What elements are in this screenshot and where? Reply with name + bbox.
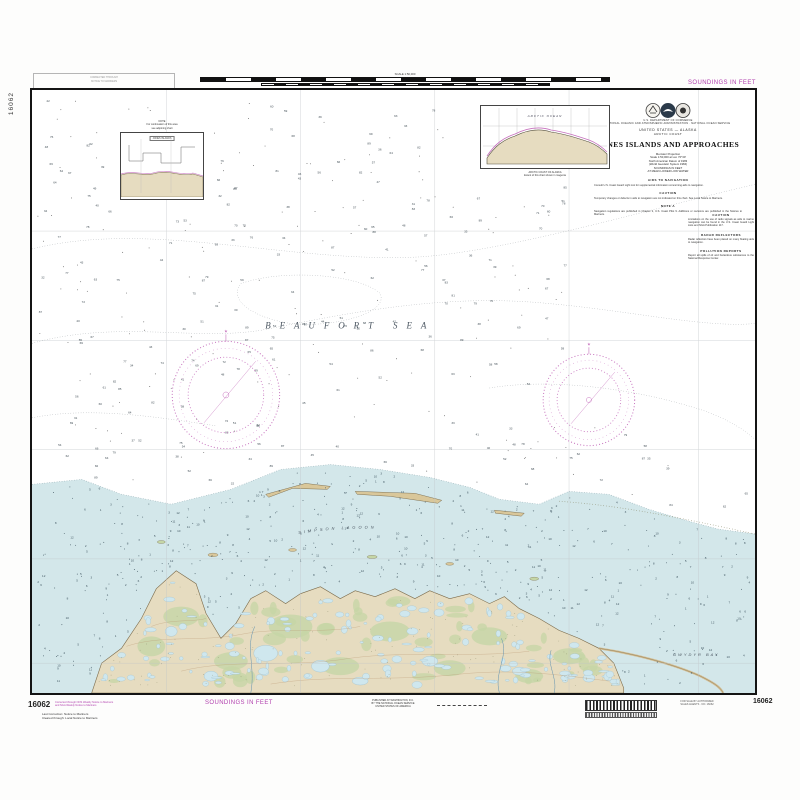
svg-text:11: 11	[172, 520, 175, 524]
svg-text:53: 53	[184, 219, 188, 223]
svg-text:34: 34	[44, 209, 48, 213]
svg-text:12: 12	[264, 558, 268, 562]
svg-text:82: 82	[227, 203, 231, 207]
svg-text:54: 54	[329, 362, 333, 366]
svg-text:62: 62	[577, 452, 581, 456]
svg-text:41: 41	[181, 377, 185, 381]
svg-text:89: 89	[270, 464, 274, 468]
svg-text:37: 37	[131, 438, 135, 442]
svg-text:33: 33	[231, 238, 235, 242]
svg-text:57: 57	[424, 233, 428, 237]
svg-text:58: 58	[181, 404, 185, 408]
right-notes-column: CAUTION Limitations on the use of radio …	[687, 208, 755, 261]
svg-text:30: 30	[182, 327, 186, 331]
svg-text:78: 78	[237, 367, 241, 371]
svg-text:77: 77	[58, 235, 62, 239]
svg-text:70: 70	[539, 226, 543, 230]
svg-text:35: 35	[464, 229, 468, 233]
svg-text:34: 34	[130, 363, 134, 367]
svg-text:12: 12	[42, 574, 46, 578]
svg-text:78: 78	[86, 225, 90, 229]
svg-text:70: 70	[234, 224, 238, 228]
svg-text:56: 56	[318, 170, 322, 174]
svg-text:82: 82	[95, 464, 99, 468]
svg-text:75: 75	[192, 292, 196, 296]
svg-text:12: 12	[596, 623, 600, 627]
svg-text:63: 63	[94, 278, 98, 282]
svg-text:48: 48	[221, 373, 225, 377]
svg-text:66: 66	[209, 478, 213, 482]
svg-text:79: 79	[474, 301, 478, 305]
svg-text:38: 38	[477, 322, 481, 326]
svg-text:72: 72	[82, 300, 86, 304]
svg-text:59: 59	[240, 278, 244, 282]
svg-text:39: 39	[493, 265, 497, 269]
svg-text:67: 67	[545, 287, 549, 291]
note-heading: RADAR REFLECTORS	[687, 233, 755, 237]
svg-text:37: 37	[442, 278, 446, 282]
svg-text:10: 10	[437, 574, 441, 578]
svg-text:36: 36	[378, 148, 382, 152]
svg-text:11: 11	[571, 606, 574, 610]
svg-text:66: 66	[384, 460, 388, 464]
svg-text:77: 77	[563, 263, 567, 267]
inset-caption-line: see adjoining chart	[120, 127, 204, 130]
depth-conversion-scale	[585, 700, 657, 718]
svg-text:33: 33	[404, 124, 408, 128]
svg-text:64: 64	[105, 456, 109, 460]
svg-text:52: 52	[331, 268, 335, 272]
note-body: Radar reflectors have been placed on man…	[688, 238, 754, 244]
svg-text:40: 40	[336, 445, 340, 449]
margin-dash-rule	[437, 705, 487, 706]
svg-text:10: 10	[396, 532, 400, 536]
svg-text:35: 35	[647, 456, 651, 460]
svg-text:11: 11	[532, 565, 535, 569]
svg-text:74: 74	[191, 358, 195, 362]
svg-text:57: 57	[372, 160, 376, 164]
svg-text:38: 38	[286, 205, 290, 209]
svg-text:31: 31	[412, 202, 416, 206]
svg-text:44: 44	[160, 258, 164, 262]
conversion-scale-row	[585, 712, 657, 718]
svg-text:66: 66	[95, 446, 99, 450]
correction-note-magenta: Corrected through NOS Weekly Notice to M…	[55, 701, 155, 707]
svg-text:52: 52	[138, 439, 142, 443]
svg-text:10: 10	[66, 616, 70, 620]
chart-number-left-margin: 16062	[8, 92, 16, 115]
note-body: Consult U.S. Coast Guard Light List for …	[594, 184, 742, 187]
note-heading: CAUTION	[580, 192, 756, 196]
svg-text:65: 65	[371, 225, 375, 229]
svg-text:32: 32	[231, 481, 235, 485]
svg-text:36: 36	[469, 254, 473, 258]
svg-text:12: 12	[341, 506, 345, 510]
chart-number-bottom-right: 16062	[753, 698, 772, 707]
note-heading: CAUTION	[687, 213, 755, 217]
svg-text:78: 78	[432, 109, 436, 113]
svg-text:31: 31	[74, 416, 78, 420]
svg-text:70: 70	[490, 299, 494, 303]
svg-text:60: 60	[547, 209, 551, 213]
svg-text:11: 11	[505, 543, 508, 547]
scale-label: SCALE 1:50,000	[200, 72, 610, 76]
svg-text:45: 45	[302, 401, 306, 405]
svg-text:64: 64	[390, 151, 394, 155]
svg-text:32: 32	[41, 275, 45, 279]
svg-text:10: 10	[727, 655, 731, 659]
svg-text:68: 68	[546, 277, 550, 281]
svg-text:10: 10	[562, 606, 566, 610]
svg-text:84: 84	[669, 503, 673, 507]
svg-text:76: 76	[250, 236, 254, 240]
svg-text:47: 47	[545, 317, 549, 321]
svg-text:10: 10	[619, 581, 623, 585]
svg-text:49: 49	[93, 186, 97, 190]
svg-text:56: 56	[257, 442, 261, 446]
svg-text:40: 40	[76, 319, 80, 323]
svg-text:11: 11	[543, 567, 546, 571]
svg-text:32: 32	[218, 194, 222, 198]
svg-text:52: 52	[503, 457, 507, 461]
svg-text:10: 10	[404, 535, 408, 539]
svg-text:52: 52	[188, 469, 192, 473]
soundings-note-bottom: SOUNDINGS IN FEET	[205, 700, 273, 708]
sales-agent-note: FOR SALE BY AUTHORIZED SALES AGENTS · NO…	[665, 700, 729, 706]
svg-text:10: 10	[256, 493, 260, 497]
svg-text:12: 12	[549, 588, 553, 592]
correction-stamp-box: CORRECTED THROUGH NOTICE TO MARINERS	[33, 73, 175, 89]
note-body: Report all spills of oil and hazardous s…	[688, 254, 754, 260]
svg-text:89: 89	[245, 325, 249, 329]
svg-text:12: 12	[360, 512, 364, 516]
chart-number-bottom-left: 16062	[28, 700, 50, 710]
agency-seals	[645, 102, 691, 119]
svg-text:64: 64	[60, 169, 64, 173]
svg-text:11: 11	[187, 525, 190, 529]
svg-text:41: 41	[476, 433, 480, 437]
svg-text:41: 41	[385, 248, 389, 252]
svg-text:71: 71	[488, 258, 492, 262]
svg-text:12: 12	[303, 546, 307, 550]
svg-text:82: 82	[113, 380, 117, 384]
svg-text:69: 69	[80, 341, 84, 345]
svg-text:75: 75	[243, 223, 247, 227]
svg-text:45: 45	[311, 453, 315, 457]
svg-text:70: 70	[541, 204, 545, 208]
svg-text:11: 11	[461, 508, 464, 512]
svg-text:56: 56	[75, 394, 79, 398]
svg-text:10: 10	[455, 558, 459, 562]
svg-text:81: 81	[275, 169, 279, 173]
svg-text:81: 81	[452, 294, 456, 298]
svg-text:70: 70	[270, 127, 274, 131]
svg-text:39: 39	[101, 165, 105, 169]
svg-text:60: 60	[270, 105, 274, 109]
svg-text:30: 30	[234, 308, 238, 312]
scale-bar-secondary	[261, 83, 550, 87]
note-heading: POLLUTION REPORTS	[687, 249, 755, 253]
svg-text:67: 67	[68, 171, 72, 175]
stamp-line: NOTICE TO MARINERS	[34, 80, 174, 84]
svg-text:65: 65	[248, 350, 252, 354]
svg-text:69: 69	[369, 132, 373, 136]
svg-text:68: 68	[421, 348, 425, 352]
svg-text:75: 75	[569, 456, 573, 460]
magenta-note-line: and NGA Weekly Notice to Mariners	[55, 704, 155, 707]
svg-text:62: 62	[371, 276, 375, 280]
publication-note: PUBLISHED AT WASHINGTON, D.C. BY THE NAT…	[352, 699, 434, 708]
conversion-scale-row	[585, 700, 657, 711]
continuation-inset: NOTE For continuation of this area see a…	[120, 120, 204, 200]
svg-text:10: 10	[274, 539, 278, 543]
black-note-line: Cleared through: Local Notice to Mariner…	[42, 717, 252, 721]
svg-text:89: 89	[460, 338, 464, 342]
svg-text:12: 12	[486, 535, 490, 539]
svg-text:33: 33	[509, 427, 513, 431]
svg-text:31: 31	[215, 304, 219, 308]
svg-text:40: 40	[487, 446, 491, 450]
svg-text:87: 87	[331, 246, 335, 250]
svg-text:85: 85	[563, 185, 567, 189]
svg-text:46: 46	[298, 172, 302, 176]
svg-text:71: 71	[536, 211, 540, 215]
svg-text:59: 59	[561, 346, 565, 350]
svg-text:75: 75	[87, 194, 91, 198]
svg-text:78: 78	[426, 199, 430, 203]
svg-text:33: 33	[411, 464, 415, 468]
svg-text:60: 60	[364, 227, 368, 231]
svg-text:10: 10	[177, 529, 181, 533]
note-block: CAUTION Limitations on the use of radio …	[687, 213, 755, 228]
sale-line: SALES AGENTS · NO. 16062	[665, 703, 729, 706]
svg-text:84: 84	[527, 382, 531, 386]
note-heading: AIDS TO NAVIGATION	[580, 179, 756, 183]
svg-text:88: 88	[372, 230, 376, 234]
svg-text:48: 48	[512, 442, 516, 446]
svg-text:56: 56	[424, 264, 428, 268]
svg-text:87: 87	[245, 338, 249, 342]
svg-text:43: 43	[80, 261, 84, 265]
declination-star-icon: ★	[224, 328, 228, 333]
svg-text:12: 12	[170, 559, 174, 563]
svg-text:66: 66	[450, 215, 454, 219]
svg-text:74: 74	[160, 361, 164, 365]
svg-text:82: 82	[359, 171, 363, 175]
svg-text:42: 42	[46, 99, 50, 103]
svg-text:78: 78	[562, 201, 566, 205]
svg-text:61: 61	[336, 388, 340, 392]
inset-ocean-label: ARCTIC OCEAN	[528, 114, 563, 118]
svg-text:82: 82	[417, 145, 421, 149]
svg-text:33: 33	[451, 421, 455, 425]
svg-text:47: 47	[377, 180, 381, 184]
note-body: Temporary changes or defects in aids to …	[594, 197, 742, 200]
svg-text:43: 43	[149, 345, 153, 349]
soundings-note-top: SOUNDINGS IN FEET	[688, 80, 756, 88]
svg-text:70: 70	[445, 301, 449, 305]
svg-text:77: 77	[421, 268, 425, 272]
svg-text:12: 12	[176, 511, 180, 515]
chart-sheet: 4187458743385988717766308977625183405466…	[30, 88, 757, 695]
svg-text:82: 82	[87, 144, 91, 148]
inset-map	[121, 133, 203, 197]
svg-text:34: 34	[291, 290, 295, 294]
svg-text:79: 79	[112, 451, 116, 455]
svg-text:10: 10	[603, 529, 607, 533]
svg-text:83: 83	[233, 187, 237, 191]
svg-text:71: 71	[169, 241, 173, 245]
svg-text:10: 10	[404, 546, 408, 550]
note-block: RADAR REFLECTORS Radar reflectors have b…	[687, 233, 755, 244]
svg-text:89: 89	[367, 142, 371, 146]
svg-text:10: 10	[245, 515, 249, 519]
svg-text:72: 72	[225, 419, 229, 423]
scale-bar-primary	[200, 77, 610, 82]
note-body: Limitations on the use of radio signals …	[688, 218, 754, 228]
svg-text:39: 39	[318, 115, 322, 119]
svg-text:87: 87	[39, 310, 43, 314]
svg-text:39: 39	[666, 466, 670, 470]
svg-text:89: 89	[479, 218, 483, 222]
svg-text:62: 62	[723, 504, 727, 508]
svg-text:10: 10	[537, 564, 541, 568]
note-block: AIDS TO NAVIGATION Consult U.S. Coast Gu…	[580, 179, 756, 187]
svg-text:12: 12	[572, 544, 576, 548]
svg-text:61: 61	[103, 385, 107, 389]
svg-text:67: 67	[477, 197, 481, 201]
svg-text:72: 72	[222, 360, 226, 364]
inset-caption-line: Extent of this chart shown in magenta	[480, 174, 610, 177]
svg-text:58: 58	[489, 363, 493, 367]
svg-text:48: 48	[45, 145, 49, 149]
svg-text:75: 75	[116, 278, 120, 282]
svg-text:38: 38	[175, 455, 179, 459]
svg-text:54: 54	[182, 445, 186, 449]
svg-text:51: 51	[200, 320, 204, 324]
svg-text:12: 12	[711, 620, 715, 624]
svg-text:64: 64	[525, 482, 529, 486]
svg-text:79: 79	[624, 433, 628, 437]
inset-map-box: ARCTIC OCEAN	[480, 105, 610, 169]
svg-text:68: 68	[291, 134, 295, 138]
svg-text:10: 10	[196, 522, 200, 526]
svg-text:58: 58	[644, 444, 648, 448]
svg-text:58: 58	[494, 362, 498, 366]
sea-name-label: BEAUFORT SEA	[265, 320, 435, 330]
graphic-scale-bar: SCALE 1:50,000	[200, 72, 610, 86]
svg-text:34: 34	[248, 457, 252, 461]
svg-text:12: 12	[246, 527, 250, 531]
svg-text:12: 12	[616, 602, 620, 606]
svg-text:10: 10	[701, 646, 705, 650]
svg-text:34: 34	[282, 236, 286, 240]
svg-text:40: 40	[95, 204, 99, 208]
svg-text:65: 65	[745, 492, 749, 496]
svg-text:64: 64	[128, 411, 132, 415]
svg-text:89: 89	[94, 476, 98, 480]
svg-text:69: 69	[215, 242, 219, 246]
svg-text:12: 12	[357, 514, 361, 518]
svg-text:70: 70	[449, 446, 453, 450]
svg-text:11: 11	[57, 679, 60, 683]
svg-text:73: 73	[176, 220, 180, 224]
svg-text:69: 69	[517, 326, 521, 330]
svg-text:65: 65	[270, 347, 274, 351]
svg-text:10: 10	[377, 534, 381, 538]
svg-text:76: 76	[220, 159, 224, 163]
bay-name-label: GWYDYR BAY	[673, 652, 720, 657]
svg-text:57: 57	[353, 205, 357, 209]
declination-star-icon: ★	[587, 341, 591, 346]
svg-text:68: 68	[531, 467, 535, 471]
svg-text:43: 43	[298, 177, 302, 181]
svg-text:87: 87	[202, 279, 206, 283]
svg-text:87: 87	[281, 444, 285, 448]
svg-text:86: 86	[370, 348, 374, 352]
svg-text:12: 12	[577, 602, 581, 606]
svg-text:36: 36	[429, 334, 433, 338]
svg-text:83: 83	[412, 207, 416, 211]
svg-text:62: 62	[89, 142, 93, 146]
svg-text:12: 12	[401, 490, 405, 494]
svg-text:12: 12	[490, 510, 494, 514]
svg-text:63: 63	[451, 372, 455, 376]
inset-map-box: JONES ISLANDS	[120, 132, 204, 200]
svg-text:77: 77	[65, 271, 69, 275]
svg-text:62: 62	[66, 454, 70, 458]
svg-text:10: 10	[655, 531, 659, 535]
svg-text:12: 12	[615, 612, 619, 616]
svg-text:67: 67	[91, 335, 95, 339]
nautical-chart-page: 16062 CORRECTED THROUGH NOTICE TO MARINE…	[0, 0, 800, 800]
svg-text:48: 48	[402, 223, 406, 227]
note-block: CAUTION Temporary changes or defects in …	[580, 192, 756, 200]
svg-text:12: 12	[584, 588, 588, 592]
svg-text:85: 85	[118, 387, 122, 391]
svg-text:69: 69	[195, 363, 199, 367]
svg-text:33: 33	[277, 252, 281, 256]
svg-text:78: 78	[521, 442, 525, 446]
svg-text:11: 11	[316, 553, 319, 557]
locator-inset: ARCTIC OCEAN ARCTIC COAST OF ALASKA Exte…	[480, 103, 610, 178]
svg-text:10: 10	[374, 474, 378, 478]
svg-text:59: 59	[284, 109, 288, 113]
svg-text:82: 82	[257, 423, 261, 427]
svg-text:66: 66	[337, 160, 341, 164]
svg-text:51: 51	[233, 421, 237, 425]
pub-line: UNITED STATES OF AMERICA	[352, 705, 434, 708]
svg-text:79: 79	[205, 275, 209, 279]
svg-text:51: 51	[340, 316, 344, 320]
svg-text:54: 54	[58, 443, 62, 447]
svg-text:11: 11	[421, 563, 424, 567]
svg-text:52: 52	[379, 375, 383, 379]
svg-text:10: 10	[131, 559, 135, 563]
correction-note-black: Last Correction: Notice to Mariners Clea…	[42, 713, 252, 721]
svg-text:61: 61	[272, 358, 276, 362]
svg-text:10: 10	[691, 580, 695, 584]
svg-text:77: 77	[123, 359, 127, 363]
note-block: POLLUTION REPORTS Report all spills of o…	[687, 249, 755, 260]
svg-text:63: 63	[394, 114, 398, 118]
svg-text:12: 12	[70, 536, 74, 540]
svg-text:66: 66	[108, 209, 112, 213]
svg-text:66: 66	[217, 178, 221, 182]
svg-text:12: 12	[361, 569, 365, 573]
svg-text:11: 11	[611, 595, 614, 599]
svg-text:66: 66	[50, 162, 54, 166]
